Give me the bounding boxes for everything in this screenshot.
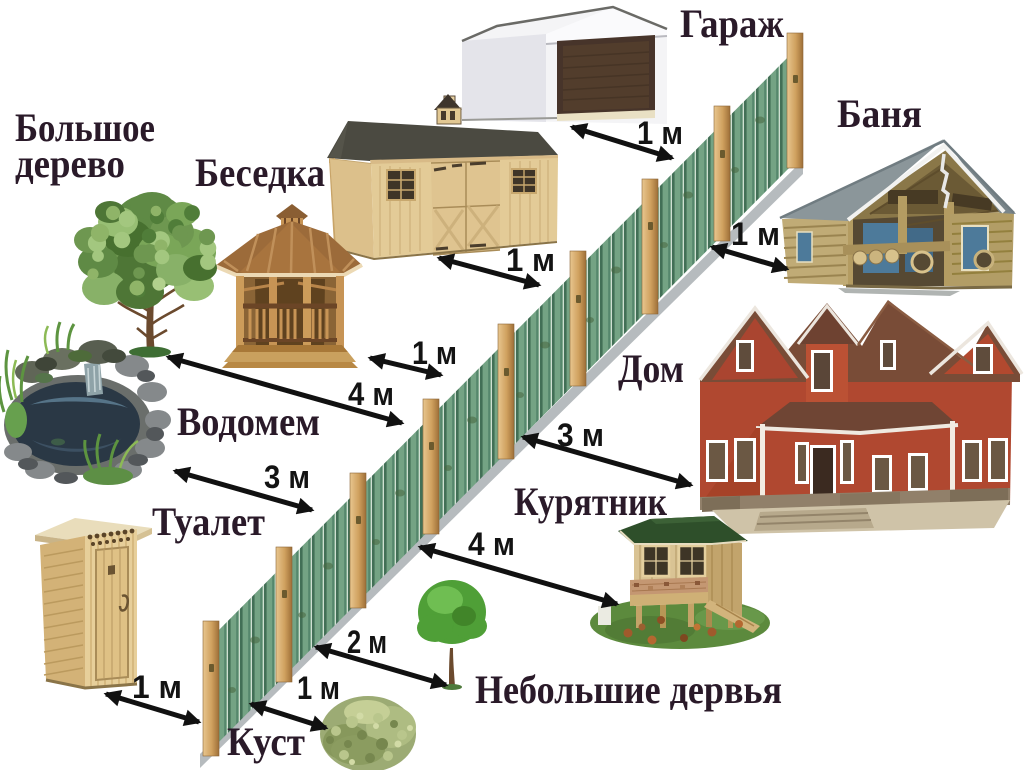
svg-text:1 м: 1 м [506,242,555,278]
svg-text:3 м: 3 м [557,417,604,453]
svg-text:4 м: 4 м [468,526,515,562]
svg-text:дерево: дерево [15,141,125,186]
svg-text:Баня: Баня [837,91,922,136]
svg-text:Куст: Куст [227,719,305,764]
svg-text:Небольшие дервья: Небольшие дервья [475,667,782,712]
svg-text:Дом: Дом [618,346,684,391]
svg-text:1 м: 1 м [731,216,780,252]
svg-text:1 м: 1 м [132,669,182,705]
svg-text:Курятник: Курятник [514,479,667,524]
svg-text:3 м: 3 м [264,459,310,495]
svg-text:1 м: 1 м [297,670,340,706]
svg-text:Водомем: Водомем [177,399,320,444]
svg-text:1 м: 1 м [412,335,457,371]
svg-text:Беседка: Беседка [195,150,325,195]
svg-text:1 м: 1 м [637,115,683,151]
svg-text:2 м: 2 м [347,624,387,660]
svg-text:4 м: 4 м [348,376,394,412]
svg-text:Гараж: Гараж [680,1,784,46]
svg-text:Туалет: Туалет [152,499,265,544]
